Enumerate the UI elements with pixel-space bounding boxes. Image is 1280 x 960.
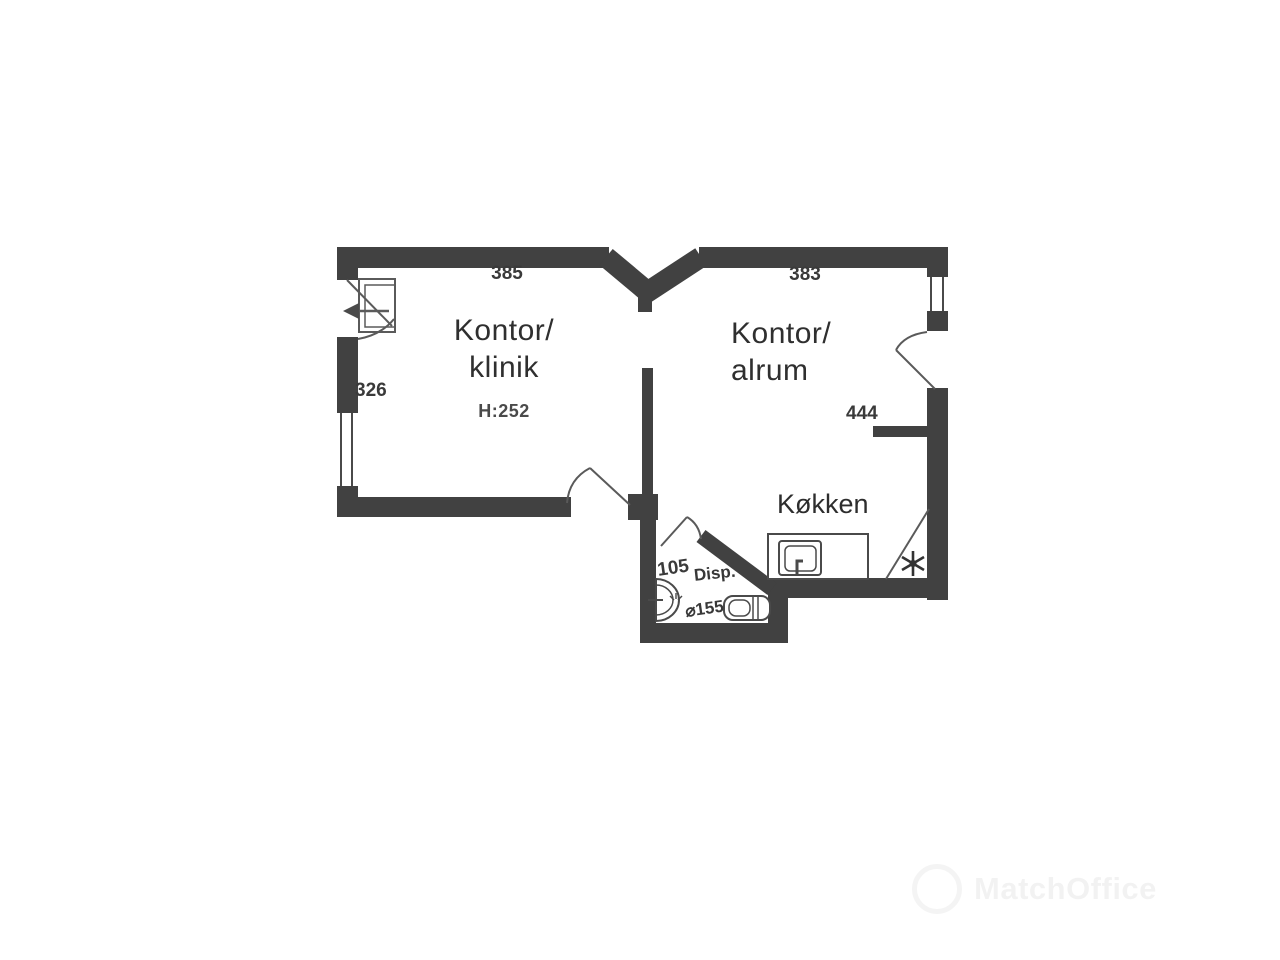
- entry-arrow-icon: [343, 303, 359, 319]
- room-label-kontor-klinik: Kontor/ klinik H:252: [418, 312, 590, 430]
- ceiling-height-label: H:252: [418, 393, 590, 430]
- dimension-383: 383: [770, 264, 840, 286]
- floor-plan-canvas: [0, 0, 1280, 960]
- window-left-wall: [337, 413, 358, 486]
- wall-right-main: [927, 388, 948, 600]
- entrance-door-icon: [343, 279, 395, 339]
- wall-divider: [642, 368, 653, 498]
- walls: [337, 247, 948, 643]
- dimension-444: 444: [846, 403, 878, 425]
- room-kontor-klinik-line1: Kontor/: [418, 312, 590, 349]
- room-label-kontor-alrum: Kontor/ alrum: [731, 315, 831, 389]
- fridge-icon: [902, 551, 924, 576]
- watermark: MatchOffice: [912, 864, 1157, 914]
- watermark-logo-icon: [912, 864, 962, 914]
- wall-stub-444: [873, 426, 931, 437]
- door-right-wall-icon: [896, 332, 935, 389]
- wall-right-corner-top: [927, 247, 948, 277]
- kitchen-counter: [768, 534, 868, 579]
- room-kontor-klinik-line2: klinik: [418, 349, 590, 386]
- watermark-text: MatchOffice: [974, 871, 1157, 907]
- room-kontor-alrum-line1: Kontor/: [731, 315, 831, 352]
- dimension-105: 105: [656, 556, 690, 582]
- door-left-room-icon: [567, 468, 630, 505]
- window-right-wall: [927, 277, 948, 311]
- dimension-385: 385: [472, 263, 542, 285]
- toilet-icon: [724, 596, 770, 620]
- wall-bottom-left-room: [337, 497, 571, 517]
- room-label-kokken: Køkken: [777, 489, 869, 520]
- dimension-326: 326: [355, 380, 387, 402]
- wall-bath-bottom: [640, 623, 788, 643]
- wall-kitchen-bottom: [768, 578, 948, 598]
- wall-left-corner-top: [337, 247, 358, 280]
- floor-plan-page: Kontor/ klinik H:252 Kontor/ alrum 385 3…: [0, 0, 1280, 960]
- door-bathroom-icon: [661, 517, 701, 546]
- room-kontor-alrum-line2: alrum: [731, 352, 831, 389]
- wall-bath-left: [640, 497, 656, 643]
- wall-top-notch-right: [646, 257, 701, 293]
- wall-notch-stub: [638, 283, 652, 312]
- wall-right-upper: [927, 311, 948, 331]
